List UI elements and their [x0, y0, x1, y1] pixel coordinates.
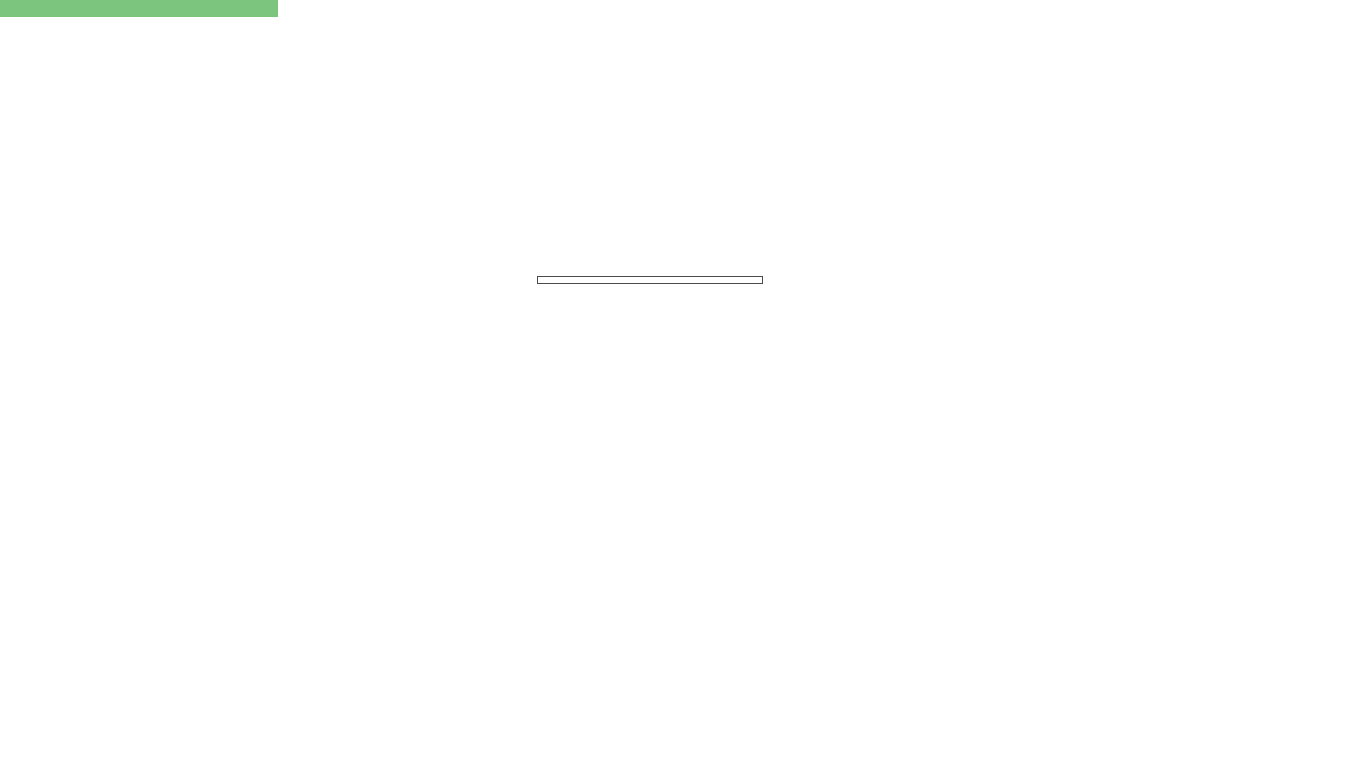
header-bar	[0, 0, 278, 17]
site-plan-page	[0, 0, 1366, 768]
architectural-drawing	[0, 0, 1366, 768]
site-info-box	[537, 276, 763, 284]
